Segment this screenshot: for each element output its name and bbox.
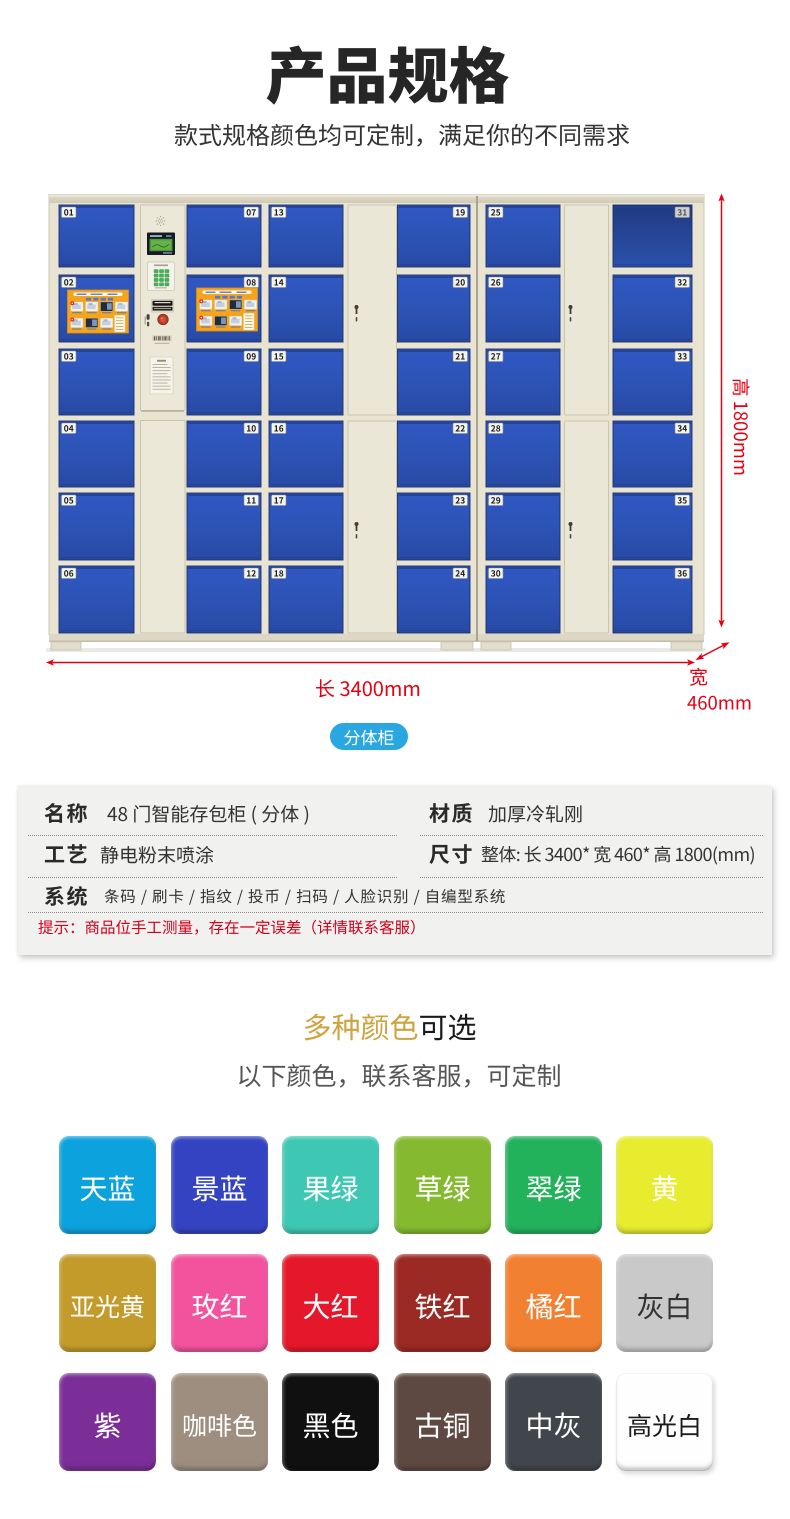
svg-text:31: 31 [677,207,687,219]
svg-text:宽: 宽 [689,663,708,690]
svg-text:03: 03 [64,351,74,363]
svg-text:12: 12 [246,568,256,580]
svg-text:11: 11 [246,495,256,507]
svg-text:29: 29 [491,495,501,507]
svg-text:26: 26 [491,277,501,289]
svg-text:32: 32 [677,277,687,289]
svg-text:07: 07 [246,207,256,219]
svg-text:13: 13 [274,207,284,219]
svg-text:22: 22 [455,423,465,435]
svg-text:30: 30 [491,568,501,580]
svg-text:20: 20 [455,277,465,289]
svg-text:33: 33 [677,351,687,363]
svg-text:21: 21 [455,351,465,363]
svg-text:18: 18 [274,568,284,580]
svg-text:09: 09 [246,351,256,363]
svg-text:高 1800mm: 高 1800mm [728,378,754,476]
svg-text:16: 16 [274,423,284,435]
svg-text:460mm: 460mm [687,690,752,716]
svg-text:02: 02 [64,277,74,289]
svg-text:长 3400mm: 长 3400mm [315,673,421,702]
svg-text:06: 06 [64,568,74,580]
svg-text:36: 36 [677,568,687,580]
svg-text:15: 15 [274,351,284,363]
svg-text:17: 17 [274,495,284,507]
svg-text:01: 01 [64,207,74,219]
svg-text:05: 05 [64,495,74,507]
svg-text:23: 23 [455,495,465,507]
svg-text:28: 28 [491,423,501,435]
svg-text:24: 24 [455,568,465,580]
svg-text:25: 25 [491,207,501,219]
svg-text:04: 04 [64,423,74,435]
svg-text:27: 27 [491,351,501,363]
svg-text:19: 19 [455,207,465,219]
svg-text:14: 14 [274,277,284,289]
svg-text:10: 10 [246,423,256,435]
svg-text:34: 34 [677,423,687,435]
svg-text:08: 08 [246,277,256,289]
svg-text:35: 35 [677,495,687,507]
